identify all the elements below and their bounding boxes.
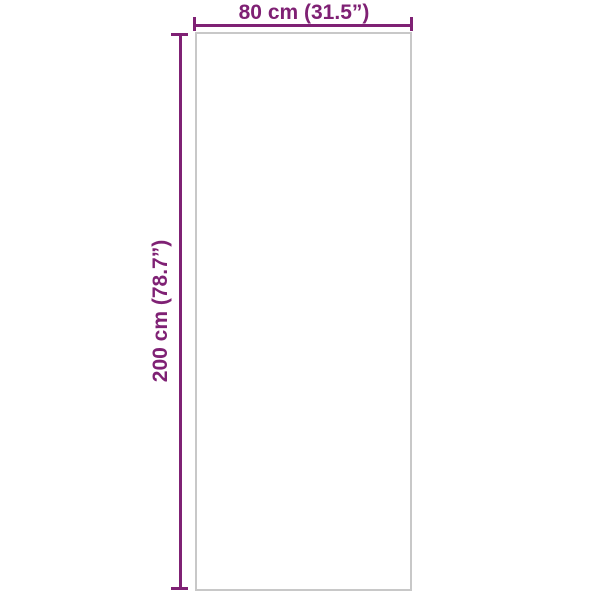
height-dimension-tick-top xyxy=(171,33,188,36)
height-dimension-label: 200 cm (78.7”) xyxy=(149,231,173,391)
product-outline-rect xyxy=(195,32,412,591)
height-dimension-tick-bottom xyxy=(171,587,188,590)
height-dimension-line xyxy=(179,33,182,590)
dimension-diagram: 80 cm (31.5”) 200 cm (78.7”) xyxy=(0,0,600,600)
width-dimension-label: 80 cm (31.5”) xyxy=(195,2,413,24)
width-dimension-line xyxy=(193,24,413,27)
